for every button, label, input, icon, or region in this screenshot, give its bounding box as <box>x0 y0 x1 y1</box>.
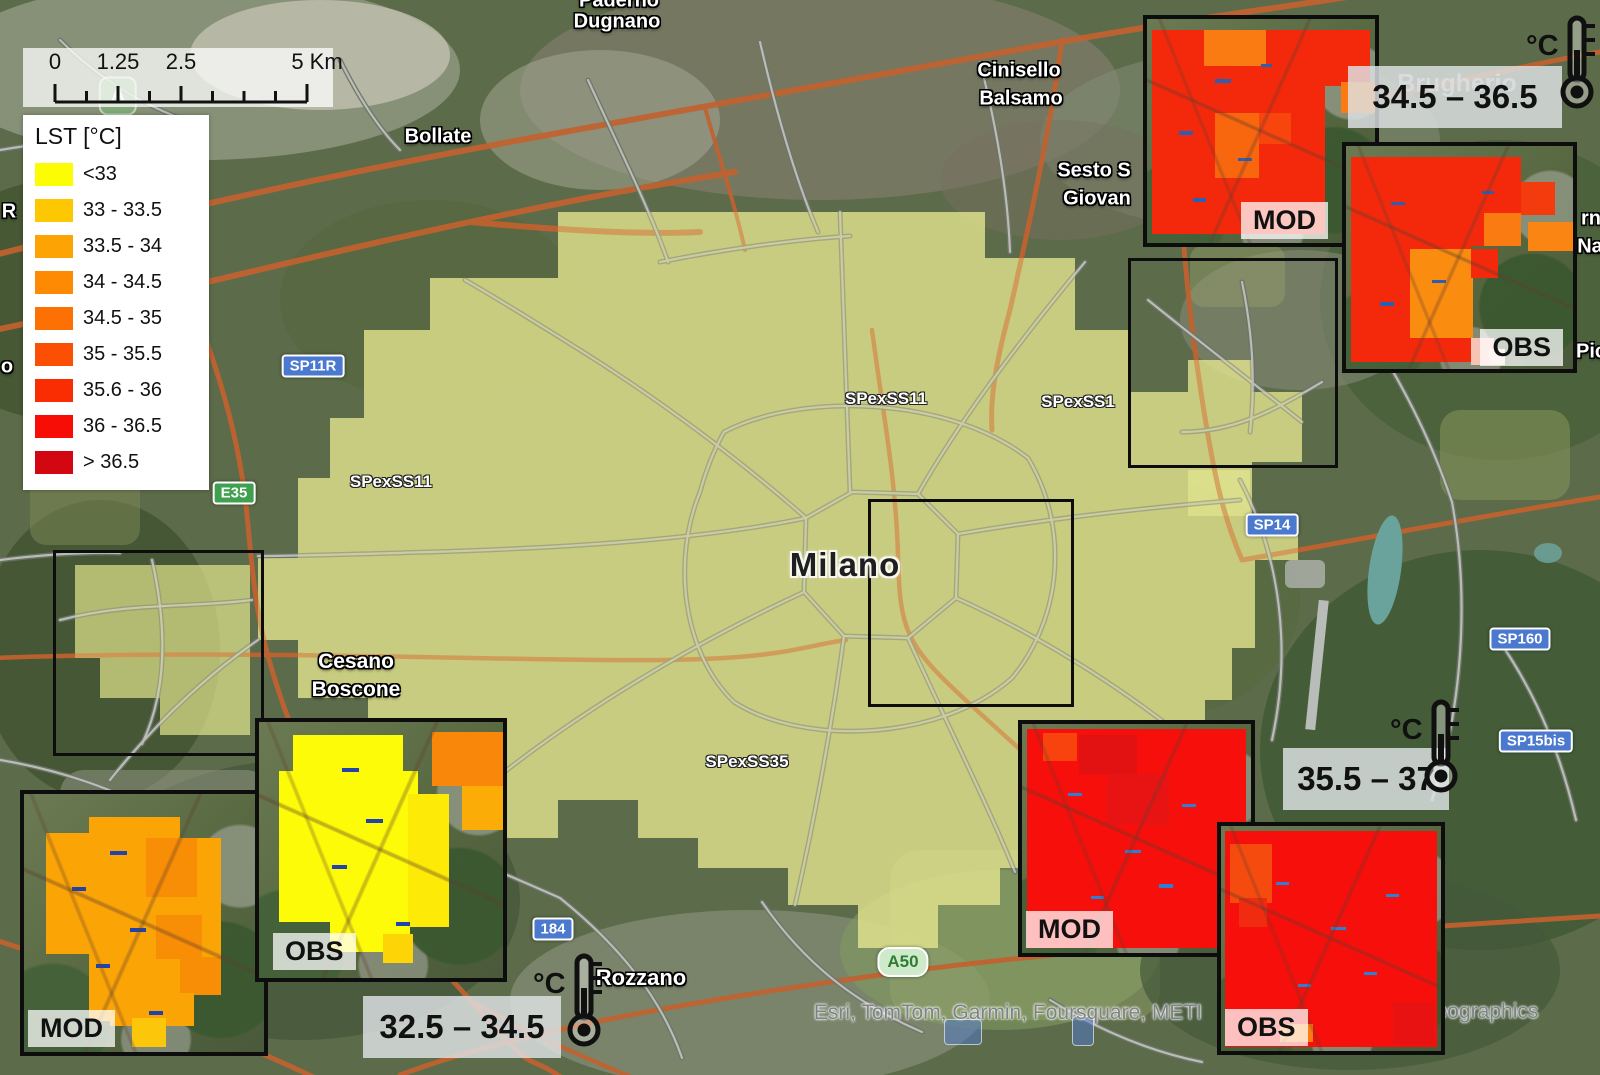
inset-cell <box>1239 898 1268 927</box>
legend-color-swatch <box>35 199 73 222</box>
city-label: Rozzano <box>596 965 686 991</box>
inset-cell <box>1276 882 1289 885</box>
road-label: SPexSS1 <box>1041 392 1115 412</box>
inset-cell <box>332 865 347 869</box>
inset-cell <box>408 794 449 927</box>
inset-label-chip: OBS <box>1480 329 1563 366</box>
inset-cell <box>1391 202 1405 206</box>
thermometer: °C <box>1390 698 1461 794</box>
legend-row: 35.6 - 36 <box>35 372 201 408</box>
legend-item-label: <33 <box>83 163 117 186</box>
city-label: Bollate <box>405 126 472 149</box>
inset-cell <box>130 928 147 932</box>
legend-item-label: 33 - 33.5 <box>83 199 162 222</box>
inset-cell <box>1215 113 1258 178</box>
legend-title: LST [°C] <box>35 123 201 150</box>
legend-color-swatch <box>35 271 73 294</box>
inset-cell <box>1298 984 1311 987</box>
legend-row: <33 <box>35 156 201 192</box>
study-area-box <box>53 550 264 756</box>
inset-cell <box>1159 884 1173 887</box>
road-label: SPexSS35 <box>705 752 788 772</box>
inset-cell <box>1482 191 1493 195</box>
inset-cell <box>146 838 196 897</box>
scale-bar-label: 2.5 <box>166 49 197 75</box>
legend-item-label: 33.5 - 34 <box>83 235 162 258</box>
inset-cell <box>342 768 359 772</box>
inset-cell <box>366 819 383 823</box>
inset-cell <box>156 915 202 959</box>
city-label: Na <box>1577 236 1600 259</box>
road-shield: SP14 <box>1246 514 1299 537</box>
inset-cell <box>1179 131 1193 135</box>
thermometer: °C <box>533 952 604 1048</box>
inset-cell <box>1193 198 1207 202</box>
road-shield: SP11R <box>282 355 345 378</box>
map-attribution-fragment: eographics <box>1436 1000 1539 1024</box>
city-label: R <box>2 201 16 224</box>
road-label: SPexSS11 <box>350 472 432 492</box>
inset-cell <box>1410 249 1474 338</box>
city-label: Boscone <box>312 678 401 702</box>
city-label: o <box>1 356 13 379</box>
legend-color-swatch <box>35 343 73 366</box>
inset-cell <box>1521 182 1555 215</box>
scale-bar-ruler <box>23 82 333 104</box>
inset-cell <box>1364 972 1377 975</box>
inset-label-chip: MOD <box>1026 911 1113 948</box>
inset-cell <box>1393 1002 1435 1045</box>
inset-cell <box>1091 896 1105 899</box>
inset-cell <box>383 934 412 962</box>
inset-panel-se-obs: OBS <box>1217 822 1445 1055</box>
thermometer-icon <box>1559 14 1597 110</box>
legend-color-swatch <box>35 379 73 402</box>
inset-cell <box>1204 30 1266 66</box>
inset-cell <box>72 887 86 891</box>
road-label: SPexSS11 <box>845 389 927 409</box>
road-shield: SP15bis <box>1499 730 1573 753</box>
scale-bar: 01.252.55 Km <box>23 48 333 107</box>
inset-cell <box>46 833 108 954</box>
thermometer-icon <box>566 952 604 1048</box>
inset-label-chip: MOD <box>28 1010 115 1047</box>
temp-range-value: 34.5 – 36.5 <box>1372 78 1537 116</box>
scale-bar-label: 0 <box>49 49 61 75</box>
legend-row: 33 - 33.5 <box>35 192 201 228</box>
legend-item-label: 36 - 36.5 <box>83 415 162 438</box>
study-area-box <box>868 499 1074 707</box>
legend-item-label: 35.6 - 36 <box>83 379 162 402</box>
scale-bar-label: 5 Km <box>291 49 342 75</box>
city-label: Pic <box>1576 341 1600 364</box>
scale-bar-label: 1.25 <box>97 49 140 75</box>
inset-cell <box>1125 850 1141 853</box>
lst-legend: LST [°C] <3333 - 33.533.5 - 3434 - 34.53… <box>23 115 209 490</box>
temp-unit-label: °C <box>533 968 566 1001</box>
city-label: Cesano <box>318 650 394 674</box>
inset-label-chip: OBS <box>1225 1009 1308 1046</box>
temp-unit-label: °C <box>1390 714 1423 747</box>
inset-cell <box>1380 302 1394 306</box>
inset-cell <box>1182 804 1196 807</box>
inset-cell <box>1331 927 1346 930</box>
inset-label-chip: MOD <box>1241 202 1328 239</box>
inset-cell <box>1484 213 1520 246</box>
inset-cell <box>1079 735 1136 774</box>
inset-panel-w-mod: MOD <box>20 790 268 1056</box>
lst-map-figure: 01.252.55 Km LST [°C] <3333 - 33.533.5 -… <box>0 0 1600 1075</box>
inset-cell <box>1215 79 1231 83</box>
city-label: Sesto S <box>1057 160 1130 183</box>
city-label: rn <box>1581 208 1600 231</box>
legend-color-swatch <box>35 163 73 186</box>
city-label: Cinisello <box>977 60 1060 83</box>
legend-item-label: 34.5 - 35 <box>83 307 162 330</box>
legend-row: 34.5 - 35 <box>35 300 201 336</box>
legend-row: 36 - 36.5 <box>35 408 201 444</box>
legend-color-swatch <box>35 307 73 330</box>
legend-row: 35 - 35.5 <box>35 336 201 372</box>
inset-cell <box>1259 113 1291 144</box>
inset-cell <box>149 1011 163 1015</box>
inset-cell <box>1107 774 1169 824</box>
inset-cell <box>1471 249 1498 278</box>
inset-cell <box>1238 158 1252 162</box>
legend-item-label: 35 - 35.5 <box>83 343 162 366</box>
inset-panel-w-obs: OBS <box>255 718 507 982</box>
inset-cell <box>96 964 110 968</box>
inset-label-chip: OBS <box>273 933 356 970</box>
inset-cell <box>1043 733 1077 760</box>
inset-cell <box>462 786 503 830</box>
inset-cell <box>396 922 411 926</box>
inset-cell <box>1261 64 1272 68</box>
road-shield: SP160 <box>1489 628 1550 651</box>
legend-color-swatch <box>35 235 73 258</box>
city-label: Milano <box>790 546 901 584</box>
inset-cell <box>1230 844 1272 903</box>
thermometer: °C <box>1526 14 1597 110</box>
legend-color-swatch <box>35 451 73 474</box>
inset-cell <box>1432 280 1446 284</box>
legend-row: > 36.5 <box>35 444 201 480</box>
inset-cell <box>1068 793 1082 796</box>
legend-row: 34 - 34.5 <box>35 264 201 300</box>
inset-cell <box>1386 894 1399 897</box>
inset-cell <box>180 957 221 996</box>
inset-cell <box>110 851 127 855</box>
inset-cell <box>132 1018 166 1046</box>
road-shield: A50 <box>877 947 928 977</box>
legend-color-swatch <box>35 415 73 438</box>
road-shield: E35 <box>213 482 256 505</box>
thermometer-icon <box>1423 698 1461 794</box>
temp-range-value: 32.5 – 34.5 <box>379 1008 544 1046</box>
road-shield: 184 <box>532 918 573 941</box>
map-attribution: Esri, TomTom, Garmin, Foursquare, METI <box>814 1001 1202 1025</box>
inset-panel-ne-obs: OBS <box>1342 142 1577 373</box>
inset-cell <box>432 732 503 786</box>
inset-cell <box>279 771 418 922</box>
study-area-box <box>1128 258 1338 468</box>
city-label: Balsamo <box>979 88 1062 111</box>
city-label: Giovan <box>1063 188 1131 211</box>
city-label: Dugnano <box>574 11 661 34</box>
legend-item-label: > 36.5 <box>83 451 139 474</box>
inset-cell <box>1528 222 1573 251</box>
temp-range-tag: 32.5 – 34.5 <box>363 996 561 1058</box>
legend-item-label: 34 - 34.5 <box>83 271 162 294</box>
temp-unit-label: °C <box>1526 30 1559 63</box>
legend-row: 33.5 - 34 <box>35 228 201 264</box>
